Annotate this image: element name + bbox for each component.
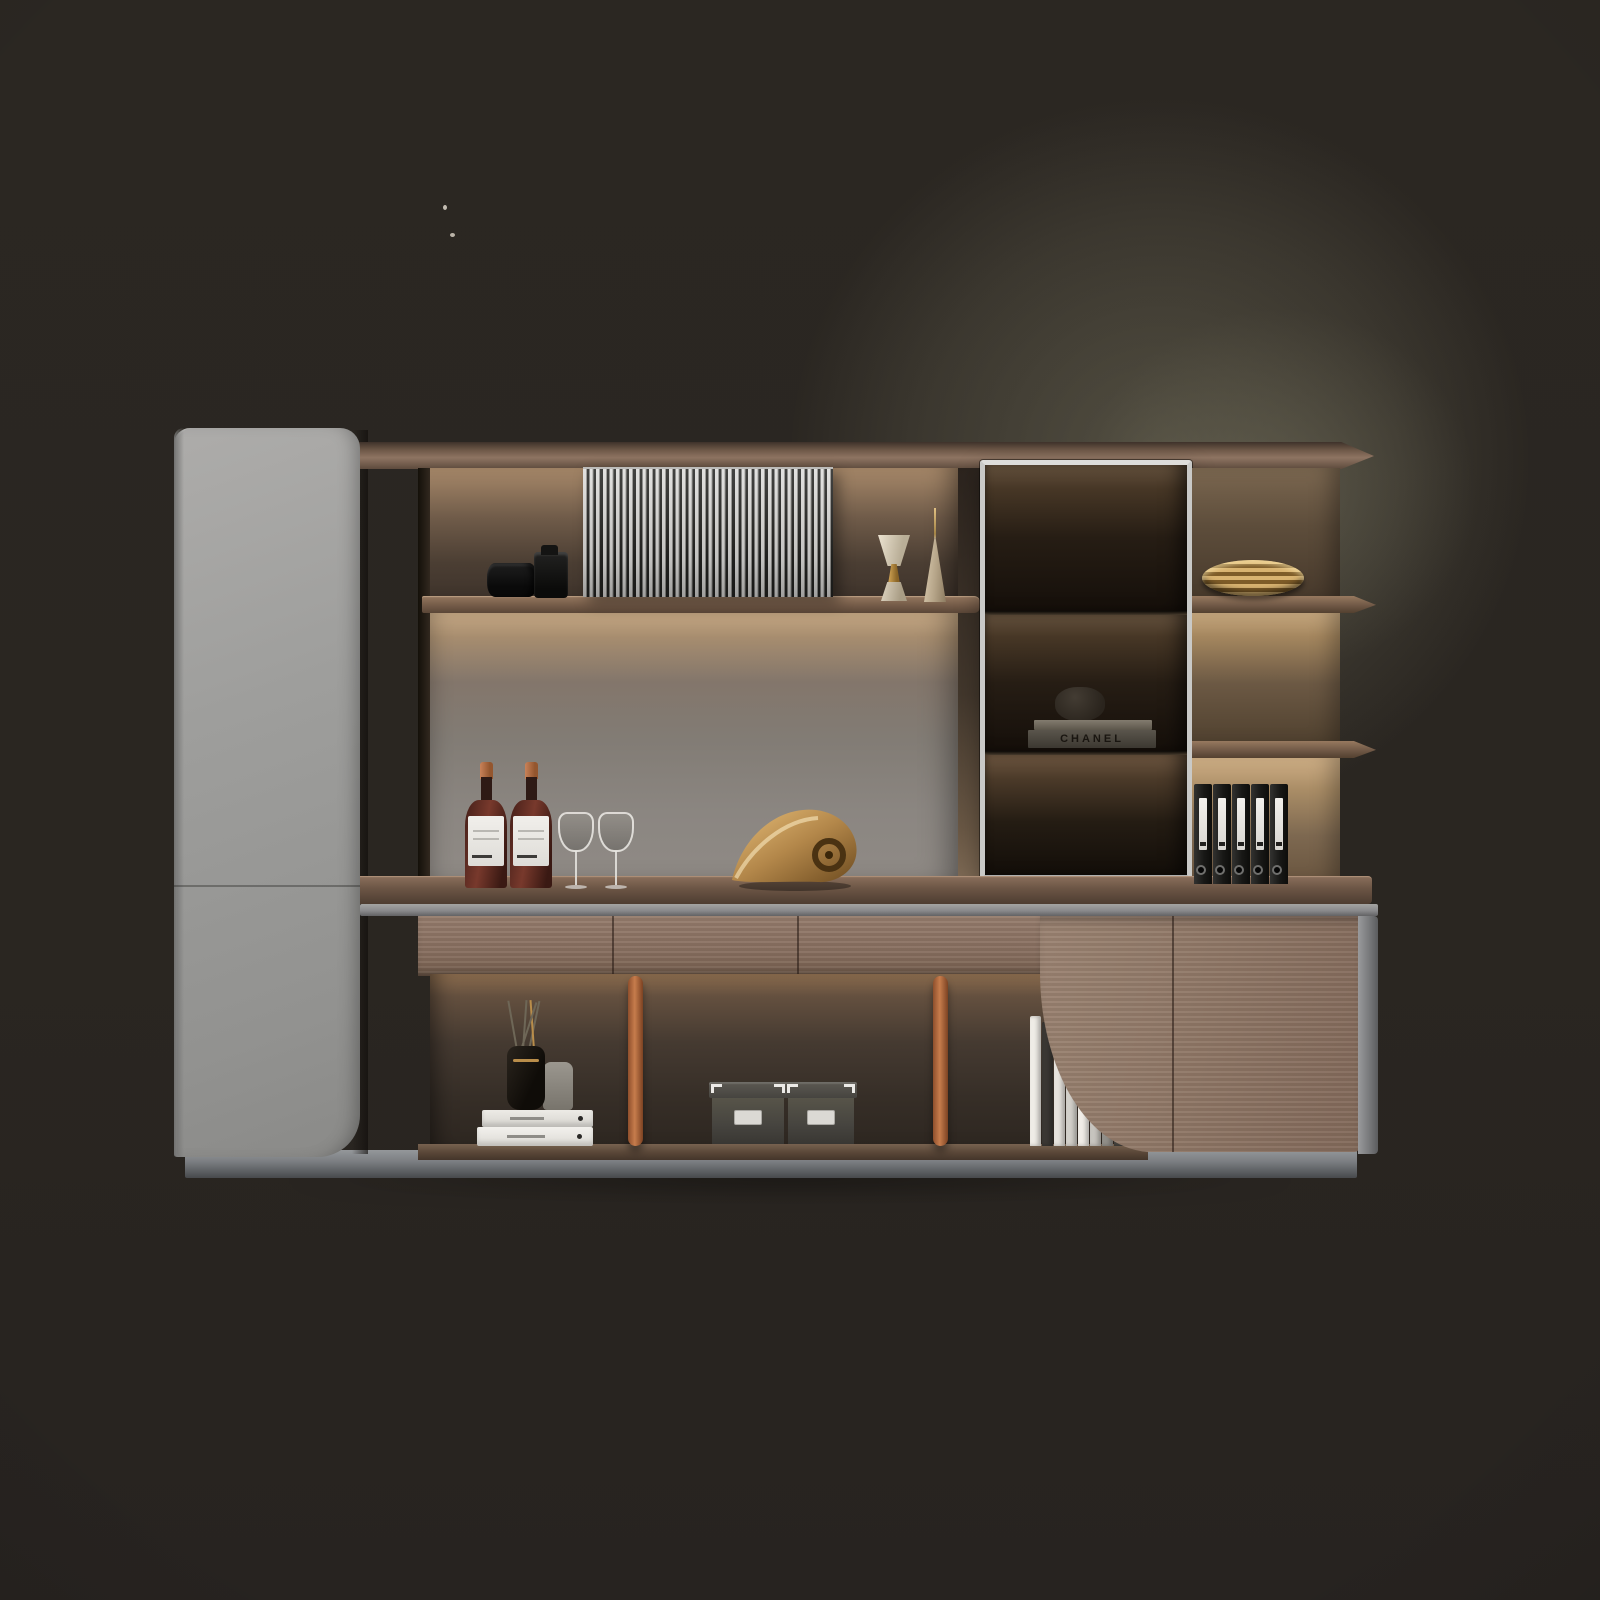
vignette-overlay xyxy=(0,0,1600,1600)
furniture-product-photo: CHANEL xyxy=(0,0,1600,1600)
